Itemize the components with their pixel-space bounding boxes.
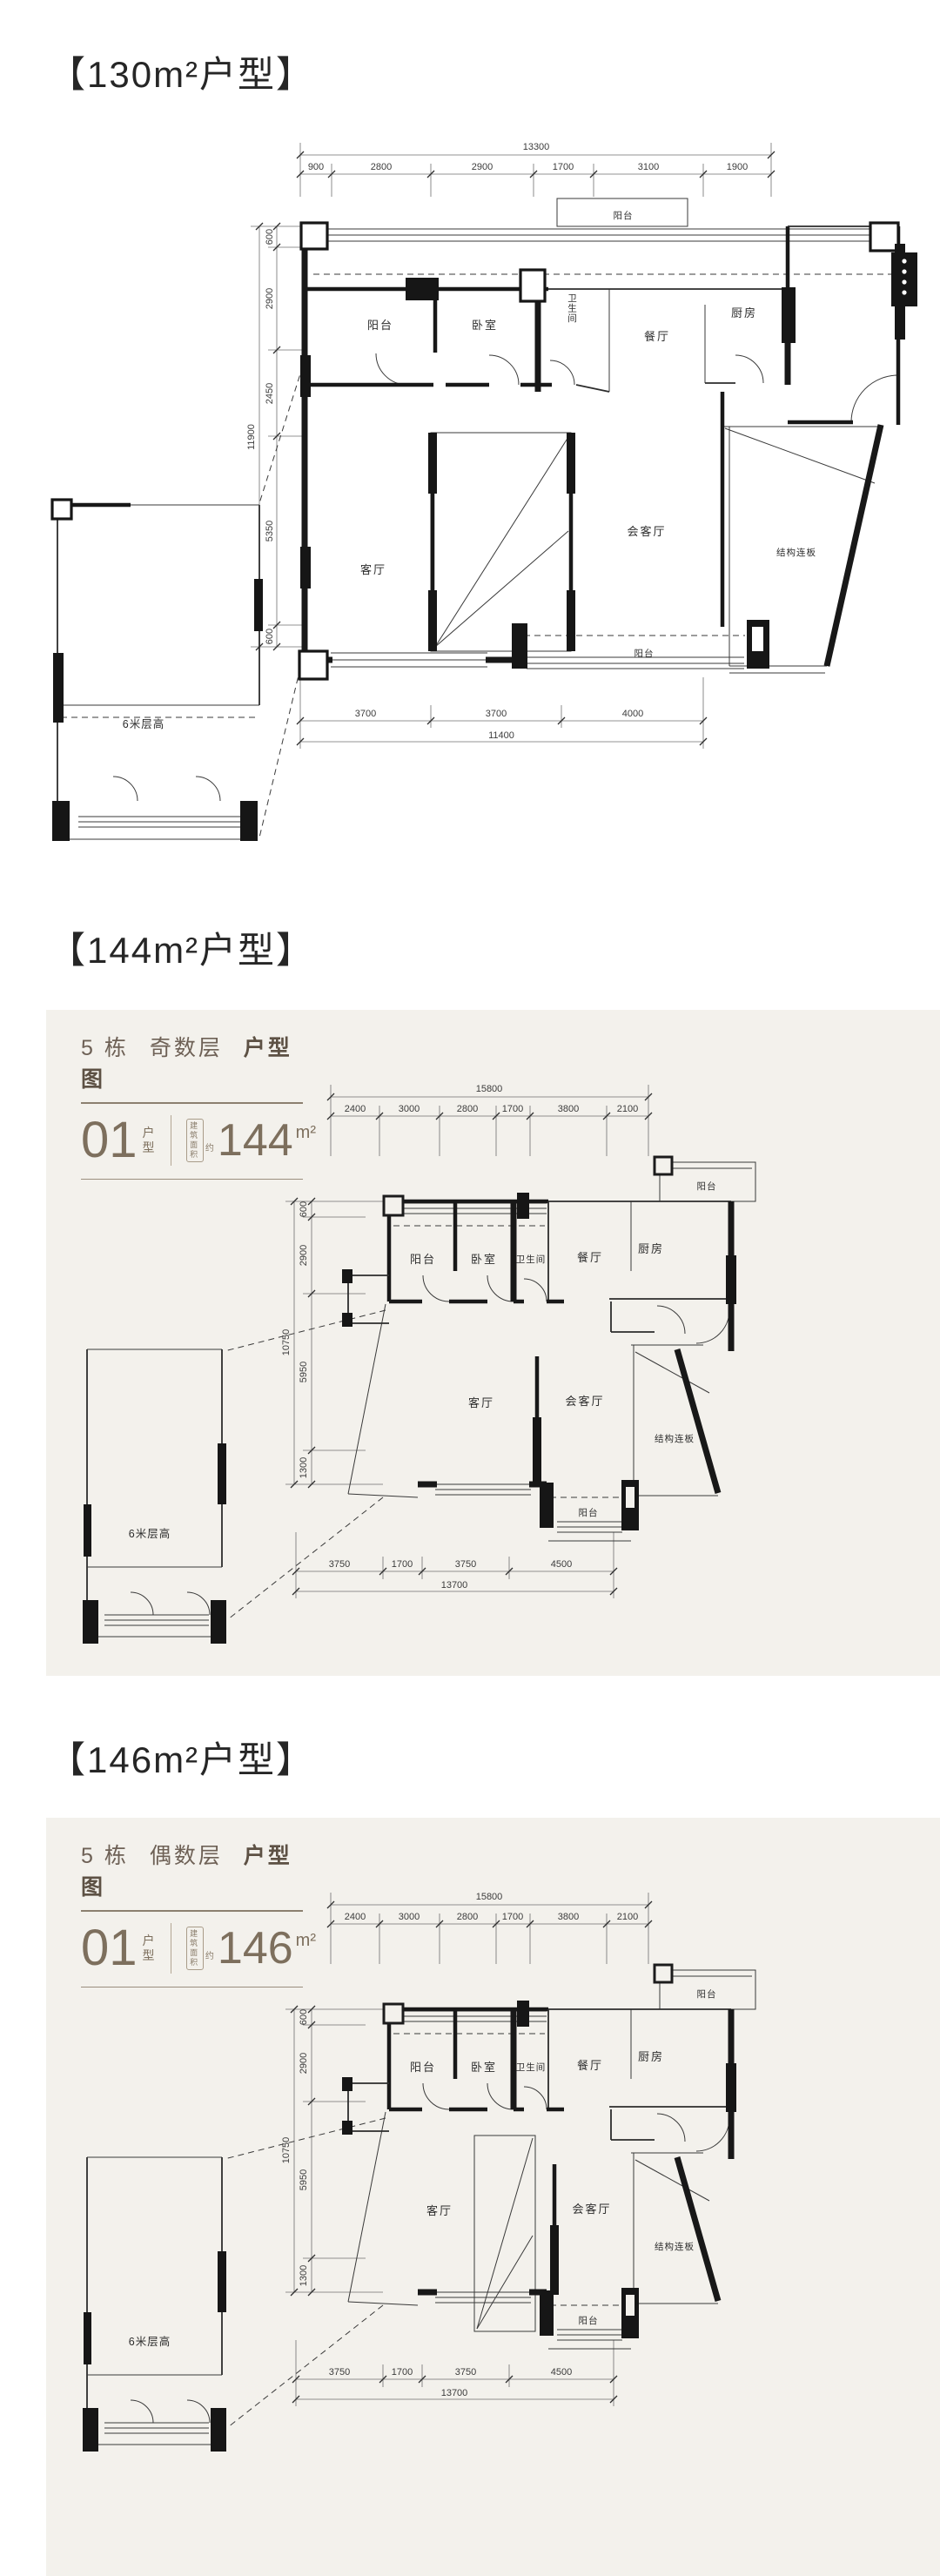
- svg-text:结构连板: 结构连板: [655, 1433, 695, 1444]
- svg-text:会客厅: 会客厅: [565, 1395, 604, 1408]
- svg-text:餐厅: 餐厅: [577, 2059, 603, 2072]
- svg-text:2100: 2100: [617, 1912, 638, 1922]
- dim-ticks-146: [291, 1901, 652, 2403]
- svg-text:4500: 4500: [551, 2367, 572, 2378]
- svg-text:2400: 2400: [345, 1104, 366, 1114]
- svg-text:2450: 2450: [265, 383, 275, 404]
- floorplan-146: 15800 2400 3000 2800 1700 3800 2100 1075…: [0, 1818, 940, 2576]
- svg-text:卧室: 卧室: [471, 1253, 497, 1266]
- svg-text:客厅: 客厅: [468, 1396, 494, 1409]
- svg-text:1300: 1300: [299, 1457, 309, 1478]
- svg-text:15800: 15800: [476, 1892, 503, 1902]
- columns-144: [83, 1157, 736, 1644]
- svg-text:结构连板: 结构连板: [655, 2241, 695, 2252]
- dim-ticks-144: [291, 1093, 652, 1595]
- svg-text:卫生间: 卫生间: [516, 1254, 547, 1265]
- svg-text:3750: 3750: [455, 1559, 476, 1570]
- plan-lines-144: [87, 1162, 755, 1637]
- svg-text:600: 600: [265, 629, 275, 644]
- svg-text:2100: 2100: [617, 1104, 638, 1114]
- svg-text:阳台: 阳台: [634, 648, 655, 659]
- svg-text:阳台: 阳台: [367, 319, 393, 332]
- svg-text:2400: 2400: [345, 1912, 366, 1922]
- svg-text:卧室: 卧室: [471, 2061, 497, 2074]
- svg-text:阳台: 阳台: [697, 1988, 717, 2000]
- section-title-144: 【144m²户型】: [49, 921, 314, 974]
- svg-text:600: 600: [265, 229, 275, 245]
- svg-text:3100: 3100: [638, 162, 659, 172]
- svg-text:3750: 3750: [455, 2367, 476, 2378]
- svg-text:厨房: 厨房: [638, 1242, 664, 1255]
- section-title-130: 【130m²户型】: [49, 45, 314, 98]
- svg-text:结构连板: 结构连板: [776, 547, 816, 558]
- svg-text:阳台: 阳台: [614, 210, 634, 221]
- svg-text:阳台: 阳台: [697, 1180, 717, 1192]
- svg-text:600: 600: [299, 2009, 309, 2025]
- svg-text:13700: 13700: [441, 2388, 468, 2398]
- svg-text:客厅: 客厅: [426, 2204, 453, 2217]
- svg-text:2900: 2900: [299, 2053, 309, 2074]
- svg-text:4500: 4500: [551, 1559, 572, 1570]
- svg-text:13300: 13300: [523, 142, 550, 152]
- svg-text:11400: 11400: [488, 730, 514, 741]
- columns-146: [83, 1965, 736, 2452]
- svg-text:5950: 5950: [299, 2169, 309, 2190]
- svg-text:卫生间: 卫生间: [516, 2061, 547, 2073]
- svg-text:2900: 2900: [299, 1245, 309, 1266]
- svg-text:10750: 10750: [281, 2137, 292, 2164]
- svg-text:餐厅: 餐厅: [577, 1251, 603, 1264]
- svg-text:15800: 15800: [476, 1084, 503, 1094]
- svg-text:阳台: 阳台: [410, 1253, 436, 1266]
- floorplan-144: 15800 2400 3000 2800 1700 3800 2100 1075…: [0, 1010, 940, 1676]
- svg-text:6米层高: 6米层高: [123, 717, 164, 730]
- svg-text:10750: 10750: [281, 1329, 292, 1356]
- page: 【130m²户型】: [0, 0, 940, 2576]
- svg-text:会客厅: 会客厅: [627, 525, 666, 538]
- floorplan-130: 13300 900 2800 2900 1700 3100 1900 11900…: [0, 96, 940, 910]
- svg-text:11900: 11900: [246, 424, 257, 450]
- svg-text:3750: 3750: [329, 2367, 350, 2378]
- svg-text:1700: 1700: [502, 1912, 523, 1922]
- svg-text:2800: 2800: [457, 1104, 478, 1114]
- dashed-lines-130: [61, 274, 895, 837]
- svg-text:阳台: 阳台: [579, 2315, 599, 2326]
- svg-text:4000: 4000: [622, 709, 643, 719]
- svg-text:900: 900: [308, 162, 324, 172]
- svg-text:1700: 1700: [553, 162, 574, 172]
- svg-text:餐厅: 餐厅: [644, 330, 670, 343]
- svg-text:3700: 3700: [355, 709, 376, 719]
- svg-text:2900: 2900: [472, 162, 493, 172]
- plan-lines-130: [57, 198, 898, 839]
- svg-text:客厅: 客厅: [360, 563, 386, 576]
- svg-text:3700: 3700: [486, 709, 507, 719]
- svg-text:1900: 1900: [727, 162, 748, 172]
- svg-text:会客厅: 会客厅: [572, 2203, 611, 2216]
- svg-text:600: 600: [299, 1201, 309, 1217]
- svg-text:3000: 3000: [399, 1912, 420, 1922]
- svg-text:1700: 1700: [392, 1559, 413, 1570]
- svg-text:阳台: 阳台: [579, 1507, 599, 1518]
- svg-text:1700: 1700: [392, 2367, 413, 2378]
- svg-text:6米层高: 6米层高: [129, 2335, 171, 2348]
- svg-text:5350: 5350: [265, 521, 275, 541]
- svg-text:卧室: 卧室: [472, 319, 498, 332]
- svg-text:2800: 2800: [371, 162, 392, 172]
- svg-text:3800: 3800: [558, 1104, 579, 1114]
- svg-text:1700: 1700: [502, 1104, 523, 1114]
- svg-text:6米层高: 6米层高: [129, 1527, 171, 1540]
- svg-text:5950: 5950: [299, 1362, 309, 1382]
- svg-text:3000: 3000: [399, 1104, 420, 1114]
- svg-text:卫生间: 卫生间: [567, 293, 577, 324]
- columns-130: [52, 223, 917, 841]
- svg-text:2900: 2900: [265, 288, 275, 309]
- svg-text:厨房: 厨房: [731, 306, 757, 319]
- section-title-146: 【146m²户型】: [49, 1731, 314, 1784]
- svg-text:阳台: 阳台: [410, 2061, 436, 2074]
- svg-text:3750: 3750: [329, 1559, 350, 1570]
- svg-text:2800: 2800: [457, 1912, 478, 1922]
- svg-text:3800: 3800: [558, 1912, 579, 1922]
- svg-text:13700: 13700: [441, 1580, 468, 1591]
- plan-lines-146: [87, 1970, 755, 2445]
- svg-text:1300: 1300: [299, 2265, 309, 2286]
- svg-text:厨房: 厨房: [638, 2050, 664, 2063]
